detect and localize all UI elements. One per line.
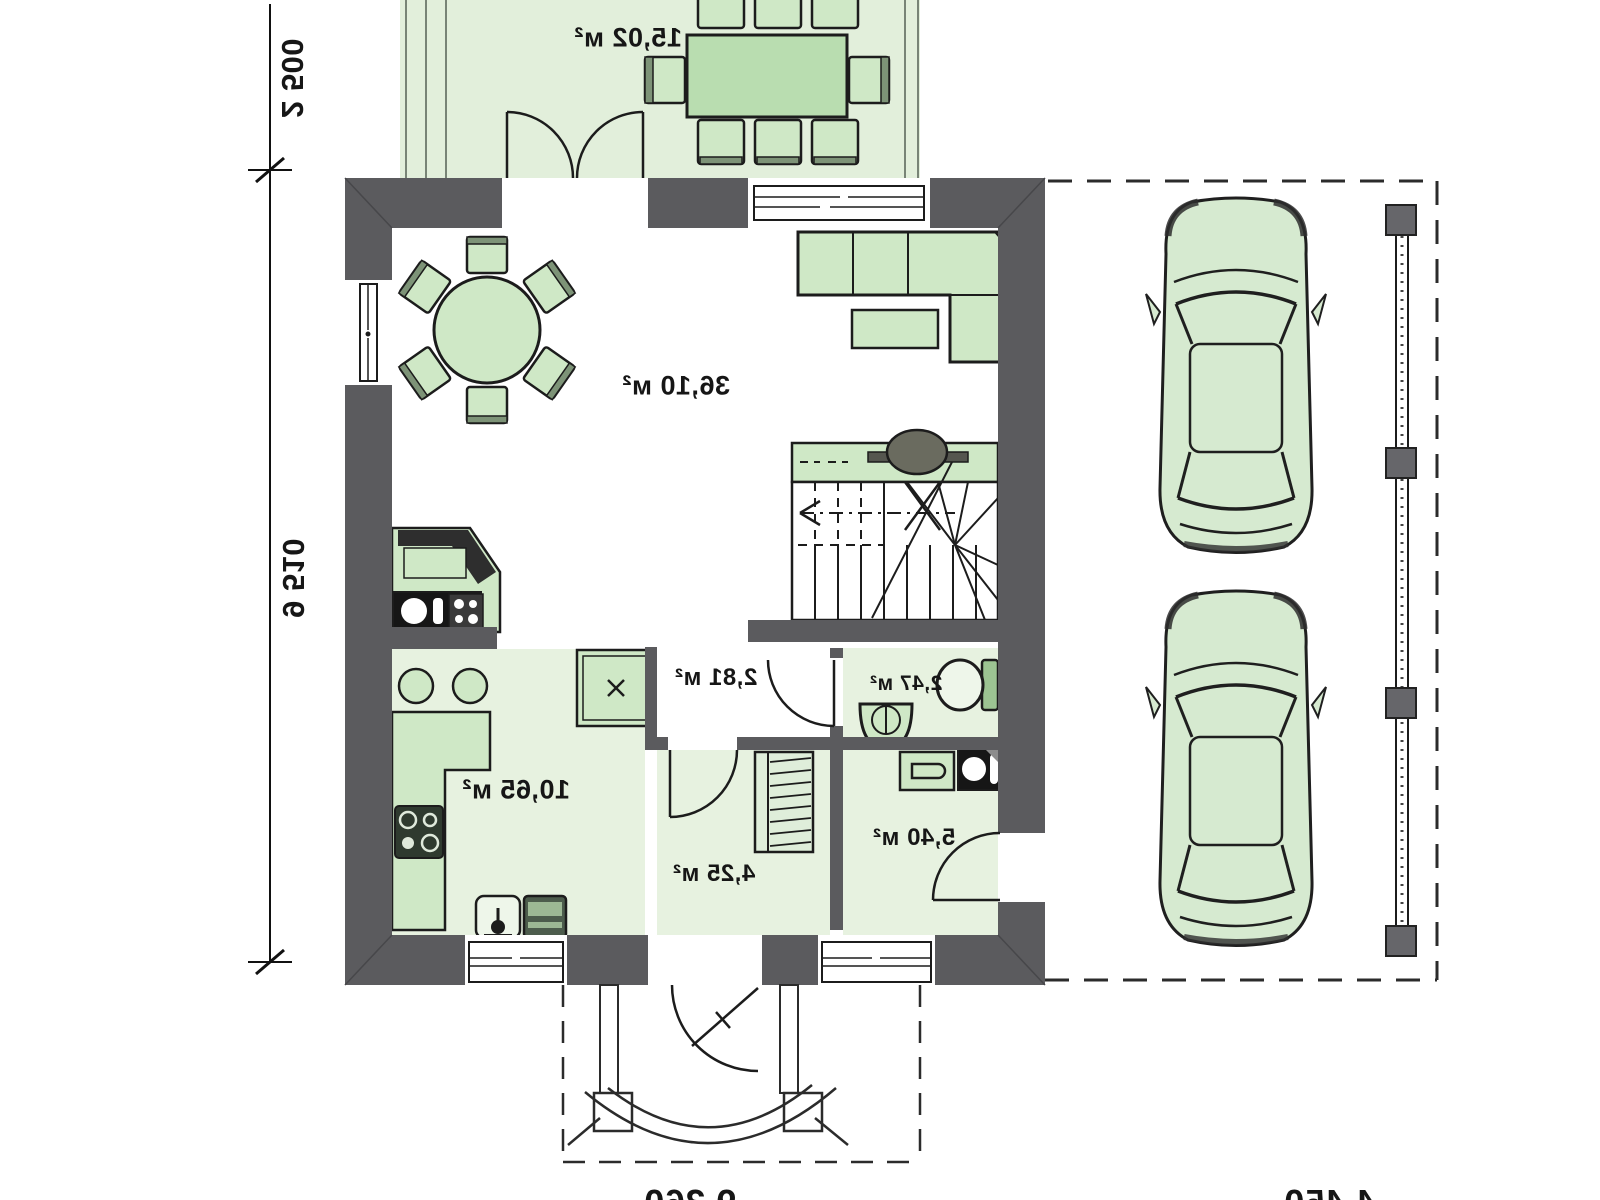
kitchen-sink-icon	[476, 896, 520, 938]
entrance-door-icon	[672, 985, 758, 1071]
room-label-terrace: 15,02 м²	[574, 23, 682, 54]
room-label-utility: 5,40 м²	[873, 824, 956, 852]
washing-machine-icon	[958, 748, 1000, 790]
stool-icon	[399, 669, 433, 703]
stairs-icon	[792, 430, 998, 620]
room-label-kitchen: 10,65 м²	[462, 775, 570, 806]
stool-icon	[453, 669, 487, 703]
dimension-label-bottom-right: 4 450	[1284, 1182, 1377, 1200]
porch-columns	[594, 985, 822, 1131]
coffee-table-icon	[852, 310, 938, 348]
car-2-icon	[1146, 591, 1326, 946]
room-label-wc: 2,47 м²	[870, 672, 943, 696]
toilet-icon	[937, 660, 998, 710]
floor-plan-canvas: 15,02 м² 36,10 м² 10,65 м² 2,81 м² 2,47 …	[0, 0, 1600, 1200]
room-label-corridor: 2,81 м²	[675, 664, 758, 692]
car-1-icon	[1146, 198, 1326, 553]
fridge-icon	[577, 650, 655, 726]
dimension-label-bottom-center: 9 360	[644, 1182, 737, 1200]
porch	[563, 985, 920, 1162]
dimension-line-left	[248, 4, 292, 974]
dishwasher-icon	[524, 896, 566, 938]
fence	[1386, 205, 1416, 956]
room-label-hall: 4,25 м²	[673, 860, 756, 888]
boiler-icon	[900, 752, 954, 790]
dimension-label-left-lower: 9 510	[275, 538, 311, 618]
hob-icon	[395, 806, 443, 858]
room-label-living-dining: 36,10 м²	[622, 371, 730, 402]
dimension-label-left-upper: 2 500	[274, 38, 310, 118]
floor-plan-drawing	[0, 0, 1600, 1200]
hall-wardrobe-icon	[755, 752, 813, 852]
